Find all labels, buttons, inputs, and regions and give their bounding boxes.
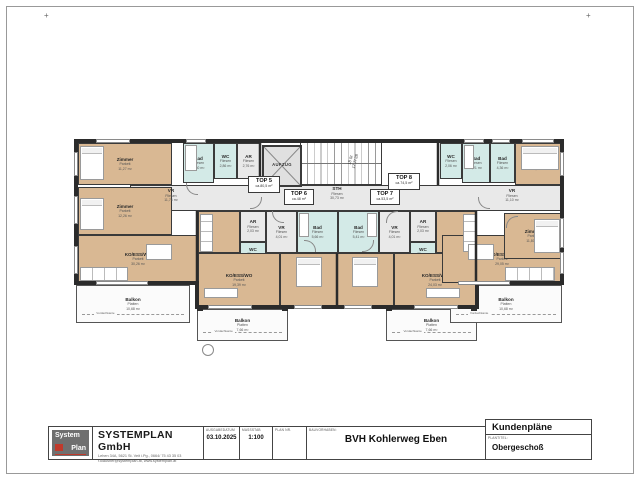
window <box>344 305 372 309</box>
plan-title-label: PLANTITEL: <box>486 435 591 440</box>
bathtub <box>185 145 197 171</box>
window <box>186 139 206 143</box>
balcony-door <box>458 281 510 285</box>
bed <box>80 198 104 230</box>
plan-number-label: PLAN Nr. <box>273 427 306 432</box>
window <box>96 139 130 143</box>
plan-sheet: + + ZimmerParkett11,27 m² BadFliesen7,60… <box>0 0 640 480</box>
room-bad: BadFliesen4,36 m² <box>490 143 515 183</box>
logo-red-square <box>55 444 63 451</box>
sofa <box>426 288 460 298</box>
kitchen-counter <box>80 267 128 281</box>
window <box>294 305 322 309</box>
room-wc: WCFliesen2,06 m² <box>440 143 462 179</box>
project-value: BVH Kohlerweg Eben <box>307 434 485 445</box>
window <box>74 246 78 274</box>
wall-stub <box>471 305 477 311</box>
apartment-label-top5: TOP 5ca.80,5 m² <box>248 176 280 193</box>
company-cell: SYSTEMPLAN GmbH Lehen 34A, 5621 St. Veit… <box>92 426 204 460</box>
dining-table <box>146 244 172 260</box>
wall-stub <box>197 305 203 311</box>
company-logo: System Plan <box>52 430 89 456</box>
logo-red-bar <box>55 454 86 456</box>
window <box>464 139 484 143</box>
bathtub <box>464 145 474 169</box>
window <box>522 139 554 143</box>
plan-number-cell: PLAN Nr. <box>272 426 307 460</box>
room-ar: ARFliesen2,76 m² <box>237 143 260 179</box>
plan-title-value: Obergeschoß <box>486 443 591 452</box>
project-label: BAUVORHABEN: <box>307 427 485 432</box>
elevator-label: AUFZUG <box>264 162 300 167</box>
date-label: AUSGABEDATUM <box>204 427 239 432</box>
window <box>560 252 564 274</box>
window <box>74 152 78 176</box>
reference-circle-mark <box>202 344 214 356</box>
room-ar: ARFliesen2,03 m² <box>410 211 436 242</box>
bed <box>521 146 559 170</box>
apartment-label-top8: TOP 8ca.74,5 m² <box>388 173 420 190</box>
plan-title-cell: Kundenpläne PLANTITEL: Obergeschoß <box>485 419 592 460</box>
balcony-top5: BalkonPlatten10,68 m² Vordachkante <box>76 285 190 323</box>
canopy-edge-line: Vordachkante <box>203 332 282 333</box>
bathtub <box>367 213 377 237</box>
kitchen-counter <box>200 214 213 252</box>
bed <box>534 219 560 253</box>
room-koesswo: KO/ESS/WOParkett19,39 m² <box>198 253 280 307</box>
date-value: 03.10.2025 <box>204 435 239 441</box>
dining-table <box>468 244 494 260</box>
canopy-edge-line: Vordachkante <box>82 314 184 315</box>
balcony-door <box>96 281 148 285</box>
scale-cell: MASSSTAB 1:100 <box>239 426 273 460</box>
room-wc: WCFliesen2,86 m² <box>214 143 237 179</box>
apartment-label-top6: TOP 6ca.48 m² <box>284 189 314 205</box>
canopy-edge-line: Vordachkante <box>456 314 556 315</box>
date-cell: AUSGABEDATUM 03.10.2025 <box>203 426 240 460</box>
crop-mark-icon: + <box>44 12 49 20</box>
kitchen-counter <box>505 267 555 281</box>
company-address-line2: r.klausner@systemplan.at, www.systemplan… <box>93 459 203 464</box>
scale-label: MASSSTAB <box>240 427 272 432</box>
company-name: SYSTEMPLAN GmbH <box>93 427 203 454</box>
bathtub <box>299 213 309 237</box>
window <box>74 196 78 224</box>
crop-mark-icon: + <box>586 12 591 20</box>
project-cell: BAUVORHABEN: BVH Kohlerweg Eben <box>306 426 486 460</box>
logo-text-system: System <box>55 432 80 439</box>
bed <box>80 146 104 180</box>
room-ar: ARFliesen2,03 m² <box>240 211 266 242</box>
staircase <box>300 141 382 185</box>
document-title: Kundenpläne <box>486 420 591 435</box>
canopy-edge-line: Vordachkante <box>392 332 471 333</box>
logo-cell: System Plan <box>48 426 93 460</box>
balcony-door <box>414 305 458 309</box>
balcony-door <box>208 305 252 309</box>
window <box>492 139 510 143</box>
sofa <box>204 288 238 298</box>
logo-text-plan: Plan <box>71 445 86 452</box>
scale-value: 1:100 <box>240 435 272 441</box>
apartment-label-top7: TOP 7ca.53,5 m² <box>370 189 400 205</box>
window <box>560 152 564 176</box>
window <box>560 218 564 248</box>
bed <box>352 257 378 287</box>
wall-stub <box>282 305 288 311</box>
title-block: System Plan SYSTEMPLAN GmbH Lehen 34A, 5… <box>48 419 592 461</box>
bed <box>296 257 322 287</box>
wall-stub <box>386 305 392 311</box>
balcony-top6: BalkonPlatten7,66 m² Vordachkante <box>197 309 288 341</box>
